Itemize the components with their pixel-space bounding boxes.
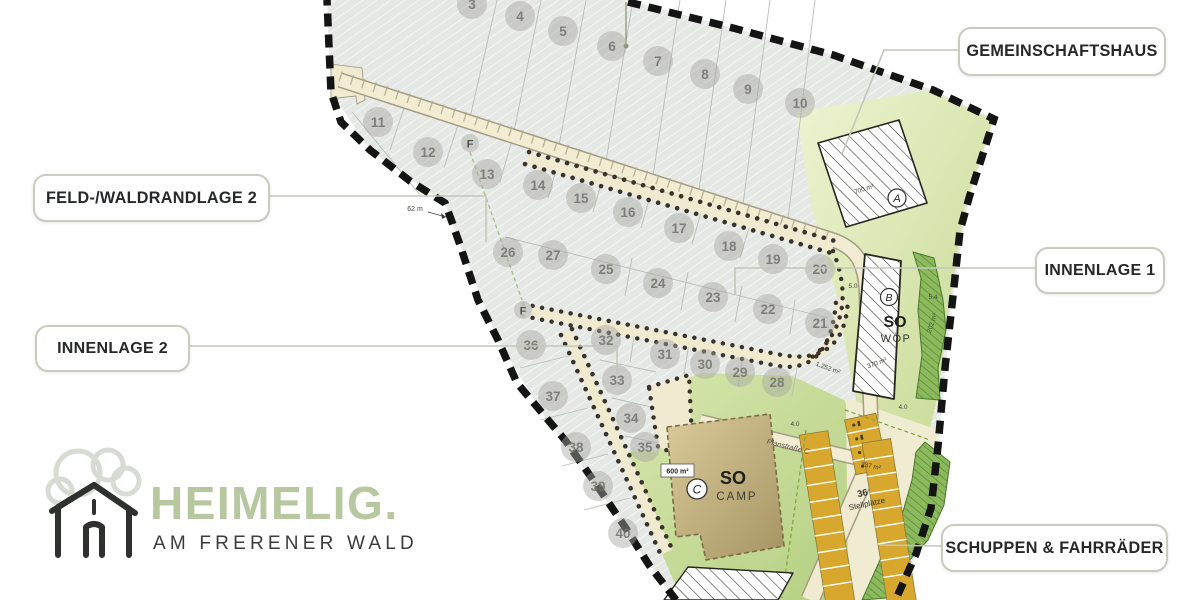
woep-code: SO [883, 314, 906, 331]
logo-name: HEIMELIG. [150, 476, 399, 530]
lot-marker: 30 [690, 349, 720, 379]
svg-text:5: 5 [559, 24, 567, 39]
lot-marker: 11 [363, 107, 393, 137]
lot-marker: 26 [493, 237, 523, 267]
svg-text:37: 37 [545, 389, 560, 404]
svg-text:F: F [520, 306, 527, 318]
svg-text:27: 27 [545, 248, 560, 263]
lot-marker: 15 [566, 183, 596, 213]
svg-text:3: 3 [468, 0, 476, 12]
lot-marker: 18 [714, 231, 744, 261]
lot-marker: 40 [608, 518, 638, 548]
lot-marker: 23 [698, 282, 728, 312]
svg-text:11: 11 [371, 115, 386, 130]
lot-marker: 35 [630, 432, 660, 462]
svg-text:22: 22 [760, 302, 775, 317]
lot-marker: 27 [538, 240, 568, 270]
edge-length-label: 62 m [407, 206, 423, 213]
lot-marker: 4 [505, 1, 535, 31]
svg-text:30: 30 [697, 357, 712, 372]
lot-marker: 22 [753, 294, 783, 324]
svg-text:39: 39 [590, 479, 605, 494]
lot-marker: 31 [650, 339, 680, 369]
svg-text:33: 33 [609, 373, 625, 388]
logo-house-door [86, 524, 102, 555]
svg-text:35: 35 [637, 440, 653, 455]
svg-text:7: 7 [654, 54, 662, 69]
svg-text:40: 40 [615, 526, 630, 541]
camp-name: CAMP [716, 491, 757, 503]
leader-schuppen [879, 545, 941, 546]
lot-marker: 38 [561, 432, 591, 462]
svg-text:28: 28 [769, 375, 785, 390]
lot-marker: 12 [413, 137, 443, 167]
lot-marker: 29 [725, 357, 755, 387]
camp-code: SO [720, 468, 746, 488]
svg-text:F: F [467, 139, 474, 151]
dimension-label: 4.0 [898, 404, 907, 411]
svg-text:14: 14 [530, 178, 546, 193]
lot-marker: 20 [805, 254, 835, 284]
logo-house-icon [40, 443, 150, 568]
svg-text:8: 8 [701, 67, 709, 82]
svg-text:9: 9 [744, 82, 752, 97]
svg-text:31: 31 [657, 347, 673, 362]
callout-schuppen-fahrraeder[interactable]: SCHUPPEN & FAHRRÄDER [941, 524, 1168, 572]
lot-marker: 13 [472, 159, 502, 189]
lot-marker: 37 [538, 381, 568, 411]
dimension-label: 5.0 [848, 283, 857, 290]
building-c-letter: C [693, 483, 702, 497]
svg-text:16: 16 [620, 205, 636, 220]
callout-gemeinschaftshaus[interactable]: GEMEINSCHAFTSHAUS [958, 27, 1166, 76]
logo-tagline: AM FRERENER WALD [153, 533, 418, 555]
lot-marker: 14 [523, 170, 553, 200]
svg-text:10: 10 [792, 96, 807, 111]
svg-text:29: 29 [732, 365, 747, 380]
dimension-label: 4.0 [790, 421, 799, 428]
svg-text:20: 20 [812, 262, 827, 277]
callout-innenlage-1[interactable]: INNENLAGE 1 [1035, 247, 1165, 294]
lot-marker: 39 [583, 471, 613, 501]
lot-marker: 19 [758, 244, 788, 274]
area-camp: 600 m² [666, 469, 689, 476]
woep-name: WÖP [881, 333, 912, 345]
callout-feld-waldrandlage-2[interactable]: FELD-/WALDRANDLAGE 2 [33, 174, 270, 222]
callout-innenlage-2[interactable]: INNENLAGE 2 [35, 325, 190, 372]
building-b-letter: B [885, 292, 892, 304]
svg-text:25: 25 [598, 262, 614, 277]
lot-marker: 16 [613, 197, 643, 227]
svg-text:17: 17 [671, 221, 686, 236]
lot-marker: 34 [616, 403, 646, 433]
svg-text:12: 12 [420, 145, 435, 160]
svg-text:21: 21 [812, 316, 828, 331]
svg-text:15: 15 [573, 191, 589, 206]
svg-text:23: 23 [705, 290, 721, 305]
svg-text:13: 13 [479, 167, 495, 182]
svg-text:24: 24 [650, 276, 666, 291]
svg-text:19: 19 [765, 252, 780, 267]
lot-marker: 21 [805, 308, 835, 338]
svg-text:6: 6 [608, 39, 616, 54]
lot-marker: 9 [733, 74, 763, 104]
heimelig-logo: HEIMELIG. AM FRERENER WALD [40, 443, 500, 573]
lot-marker: 28 [762, 367, 792, 397]
building-a-letter: A [892, 193, 900, 205]
svg-text:4: 4 [516, 9, 524, 24]
lot-marker: 6 [597, 31, 627, 61]
lot-marker: 8 [690, 59, 720, 89]
svg-text:34: 34 [623, 411, 639, 426]
lot-marker: 10 [785, 88, 815, 118]
svg-text:26: 26 [500, 245, 516, 260]
lot-marker: 24 [643, 268, 673, 298]
lot-marker: 17 [664, 213, 694, 243]
lot-marker: 5 [548, 16, 578, 46]
lot-marker: 25 [591, 254, 621, 284]
lot-marker: 36 [516, 330, 546, 360]
site-plan-page: 3456789101112131415161718192021222324252… [0, 0, 1200, 600]
svg-text:38: 38 [568, 440, 584, 455]
lot-marker: 7 [643, 46, 673, 76]
svg-text:36: 36 [856, 487, 869, 500]
dimension-label: 5.4 [928, 294, 937, 301]
svg-text:18: 18 [721, 239, 737, 254]
